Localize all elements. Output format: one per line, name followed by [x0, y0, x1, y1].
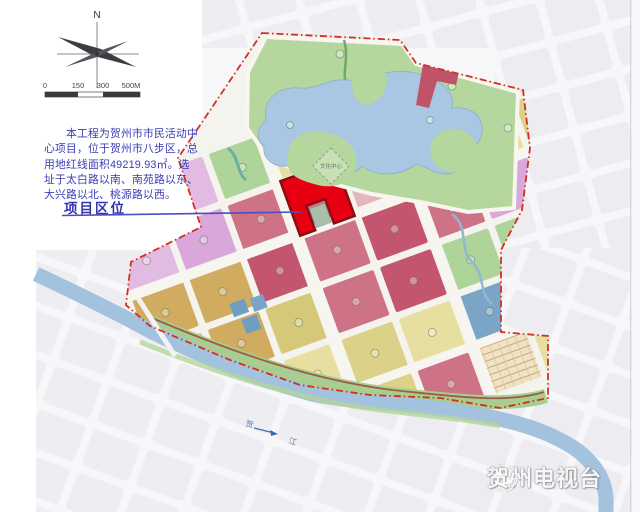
tv-station-logo-icon [487, 461, 521, 495]
sheet-edge-line [630, 0, 631, 512]
annotation-line: 用地红线面积49219.93㎡。选 [44, 158, 198, 173]
annotation-line: 心项目，位于贺州市八步区，总 [44, 142, 198, 157]
compass-north-label: N [93, 10, 100, 21]
center-marker-label: 文化中心 [320, 162, 343, 170]
scale-tick-150: 150 [72, 81, 85, 90]
scale-tick-300: 300 [97, 81, 110, 90]
planning-map-sheet: 文化中心 贺 江 N 0 150 300 500M [0, 0, 640, 512]
project-annotation: 本工程为贺州市市民活动中 心项目，位于贺州市八步区，总 用地红线面积49219.… [44, 127, 198, 203]
annotation-line: 址于太白路以南、南苑路以东、 [44, 173, 198, 188]
watermark: 贺州电视台 [487, 461, 602, 493]
annotation-line: 本工程为贺州市市民活动中 [44, 127, 198, 142]
location-label: 项目区位 [64, 197, 126, 217]
map-canvas: 文化中心 贺 江 N 0 150 300 500M [0, 0, 640, 512]
scale-tick-500: 500M [122, 81, 141, 90]
scale-tick-0: 0 [43, 81, 47, 90]
